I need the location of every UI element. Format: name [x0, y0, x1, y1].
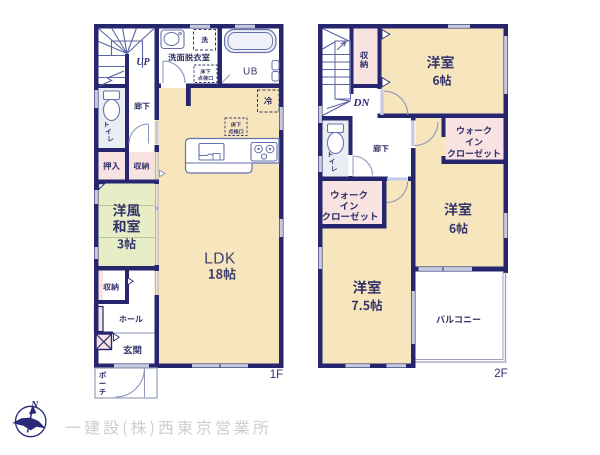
svg-text:2F: 2F: [494, 368, 507, 380]
svg-text:LDK: LDK: [204, 251, 236, 268]
svg-text:UP: UP: [136, 57, 150, 68]
svg-text:UB: UB: [243, 67, 258, 78]
svg-text:N: N: [30, 400, 39, 411]
svg-text:DN: DN: [353, 97, 371, 109]
svg-text:1F: 1F: [270, 369, 283, 381]
